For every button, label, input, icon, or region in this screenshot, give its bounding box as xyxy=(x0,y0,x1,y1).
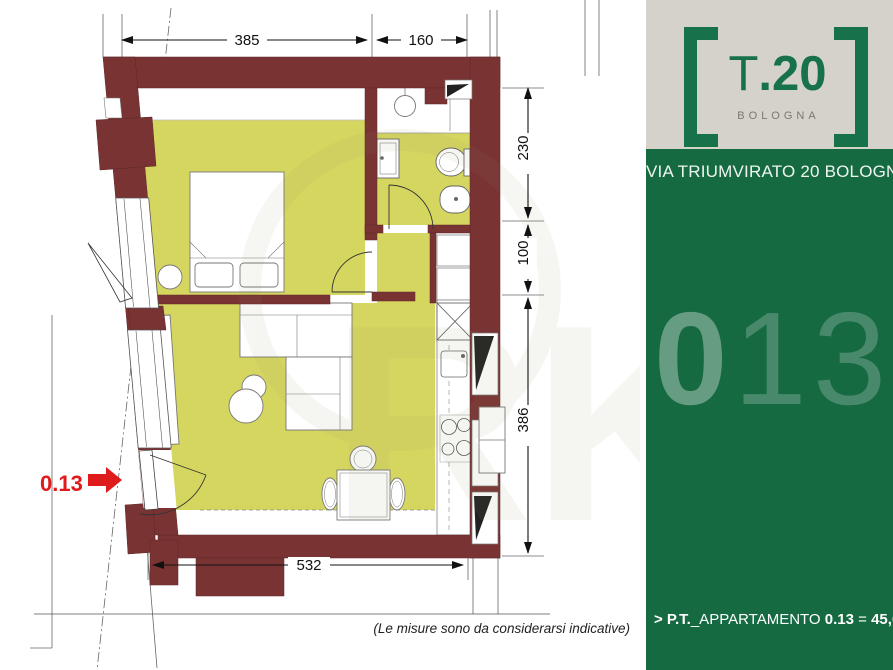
entry-arrow-icon xyxy=(88,467,122,493)
logo-title: T.20 xyxy=(646,50,893,99)
floor-plan-drawing: RK 385 160 230 100 386 532 0.13 xyxy=(0,0,640,670)
floor-plan-area: RK 385 160 230 100 386 532 0.13 xyxy=(0,0,640,670)
bedside-table xyxy=(158,265,182,289)
entry-label: 0.13 xyxy=(40,467,122,496)
address-line: VIA TRIUMVIRATO 20 BOLOGNA xyxy=(646,162,893,182)
wall-top xyxy=(103,57,500,88)
dim-386: 386 xyxy=(515,407,532,432)
pillow xyxy=(195,263,233,287)
logo-city: BOLOGNA xyxy=(646,110,893,122)
closet xyxy=(437,235,471,266)
floor-caption: > P.T._APPARTAMENTO 0.13 = 45,60mq xyxy=(654,611,893,628)
green-panel: VIA TRIUMVIRATO 20 BOLOGNA 013 > P.T._AP… xyxy=(646,149,893,670)
wall-pier xyxy=(150,540,178,585)
listing-card: RK 385 160 230 100 386 532 0.13 xyxy=(0,0,893,670)
entry-unit-number: 0.13 xyxy=(40,471,83,496)
wall-pier xyxy=(96,117,156,170)
measures-note: (Le misure sono da considerarsi indicati… xyxy=(373,621,630,636)
unit-big-number: 013 xyxy=(654,293,892,425)
coffee-table xyxy=(229,389,263,423)
dim-100: 100 xyxy=(515,240,532,265)
wall-pier xyxy=(128,306,166,330)
shower-head xyxy=(395,96,416,117)
wall-bath-bedroom xyxy=(365,88,377,240)
dim-230: 230 xyxy=(515,135,532,160)
dim-160: 160 xyxy=(408,32,433,49)
dim-532: 532 xyxy=(296,557,321,574)
brand-sidebar: T.20 BOLOGNA VIA TRIUMVIRATO 20 BOLOGNA … xyxy=(646,0,893,670)
wall-block xyxy=(196,558,284,596)
svg-text:RK: RK xyxy=(330,268,640,580)
logo-block: T.20 BOLOGNA xyxy=(646,0,893,149)
dim-385: 385 xyxy=(234,32,259,49)
